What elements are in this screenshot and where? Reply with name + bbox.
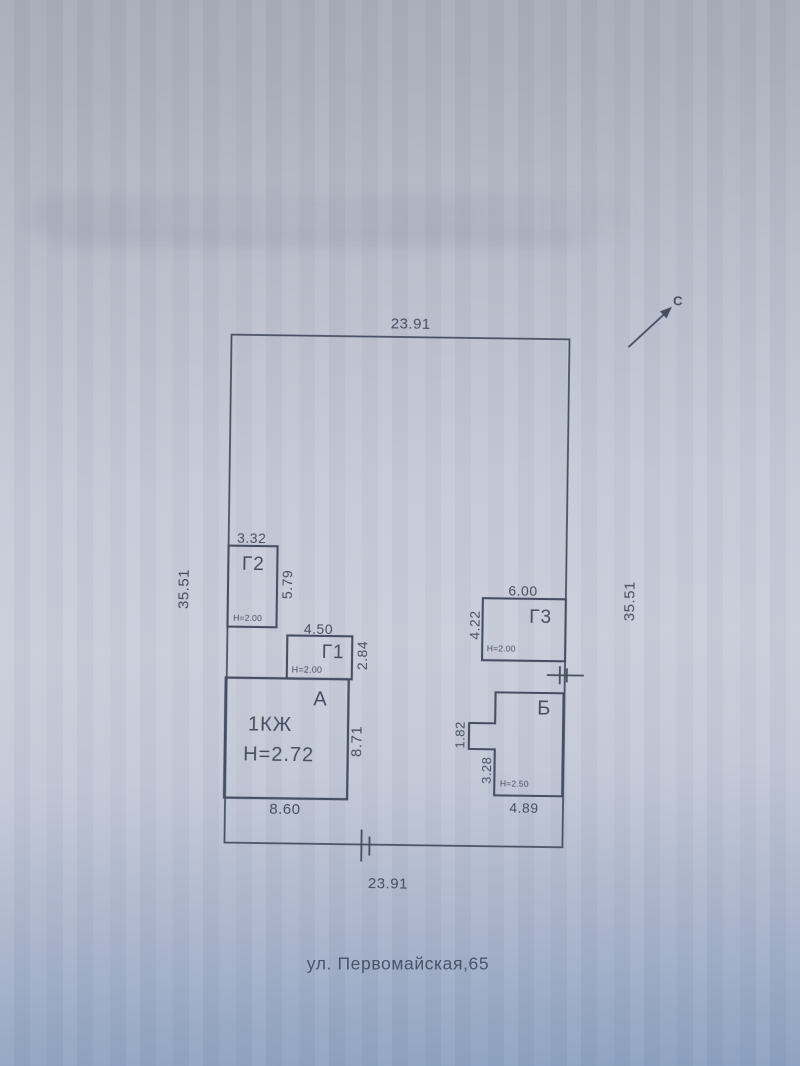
b-label: Б — [537, 697, 551, 720]
g3-height-label: Н=2.00 — [487, 643, 516, 653]
scanned-site-plan-photo: 23.91 23.91 35.51 35.51 С 3.32 Г2 Н=2.00… — [0, 0, 800, 1066]
g3-label: Г3 — [529, 607, 552, 629]
dim-plot-top: 23.91 — [391, 315, 431, 333]
gate-mark-bottom — [361, 829, 369, 861]
g1-dim-depth: 2.84 — [354, 641, 370, 670]
g1-height-label: Н=2.00 — [292, 664, 323, 674]
dim-plot-bottom: 23.91 — [368, 875, 408, 893]
g3-dim-depth: 4.22 — [466, 610, 482, 639]
a-height-label: Н=2.72 — [243, 743, 314, 767]
b-dim-notch: 1.82 — [452, 721, 467, 749]
b-height-label: Н=2.50 — [500, 778, 529, 788]
g2-height-label: Н=2.00 — [233, 613, 262, 623]
dim-plot-right: 35.51 — [621, 581, 639, 621]
dim-plot-left: 35.51 — [175, 569, 193, 609]
a-storeys-label: 1КЖ — [248, 713, 293, 737]
site-plan-drawing: 23.91 23.91 35.51 35.51 С 3.32 Г2 Н=2.00… — [0, 0, 800, 1066]
a-label: А — [313, 688, 328, 711]
g2-dim-depth: 5.79 — [279, 570, 295, 599]
north-arrow — [628, 306, 672, 348]
g3-dim-width: 6.00 — [508, 583, 537, 599]
site-plan-linework — [0, 0, 800, 1066]
street-address-label: ул. Первомайская,65 — [307, 954, 489, 975]
a-dim-width: 8.60 — [269, 801, 300, 818]
g2-label: Г2 — [242, 554, 265, 576]
g1-label: Г1 — [322, 642, 345, 664]
g2-dim-width: 3.32 — [237, 530, 266, 546]
b-dim-width: 4.89 — [509, 800, 538, 816]
north-label: С — [673, 293, 683, 308]
building-a-outline — [224, 678, 349, 800]
b-dim-side: 3.28 — [479, 756, 494, 784]
a-dim-depth: 8.71 — [348, 726, 365, 757]
g1-dim-width: 4.50 — [304, 621, 333, 637]
